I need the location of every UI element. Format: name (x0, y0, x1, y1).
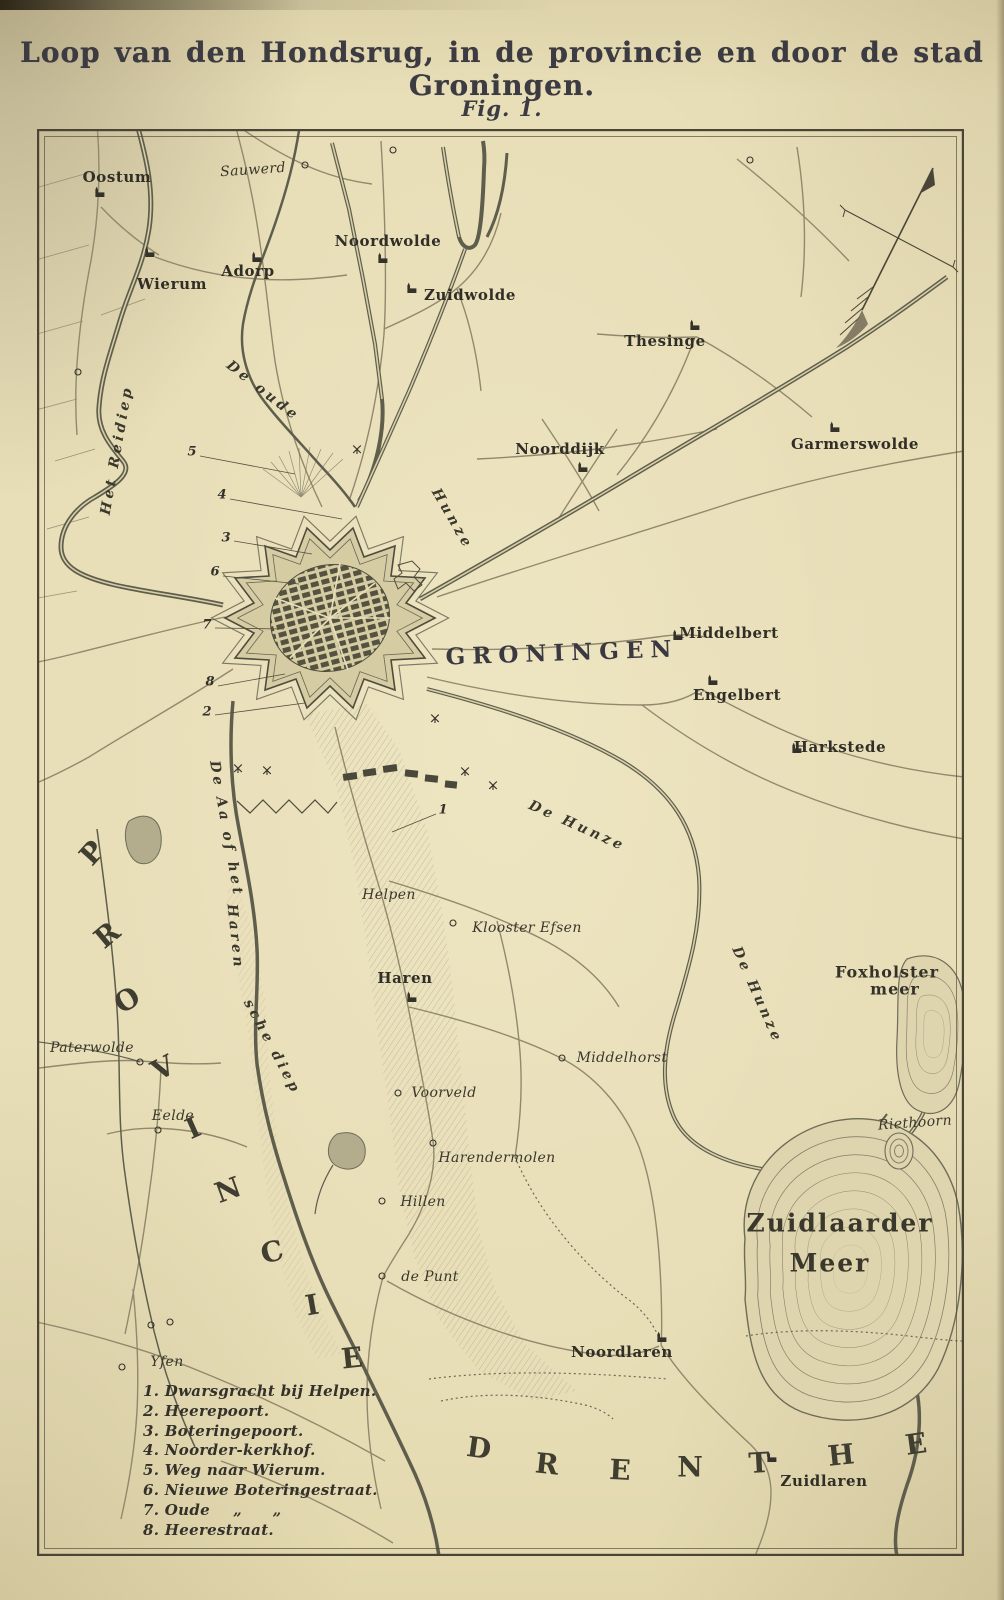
legend-item: 4. Noorder-kerkhof. (143, 1441, 378, 1461)
river-centerlines (61, 129, 947, 1173)
helper-linie-zigzag (237, 800, 337, 813)
legend-item: 8. Heerestraat. (143, 1521, 378, 1541)
windmill-icon (489, 782, 497, 791)
riethoorn-pond (885, 1133, 913, 1169)
zuidlaarder-meer (744, 1119, 962, 1421)
groningen-fortress (211, 516, 448, 719)
photo-edge-right (996, 0, 1004, 1600)
church-icon (252, 252, 261, 262)
foxholster-meer (897, 956, 964, 1113)
windmill-icon (431, 715, 439, 724)
church-icon (708, 675, 717, 685)
church-icon (767, 1452, 776, 1462)
church-icon (690, 320, 699, 330)
hondsrug-ridge-hatching (225, 704, 577, 1401)
legend-item: 2. Heerepoort. (143, 1402, 378, 1422)
legend-item: 7. Oude „ „ (143, 1501, 378, 1521)
place-circle-marker (747, 157, 753, 163)
legend-item: 3. Boteringepoort. (143, 1422, 378, 1442)
legend-item: 1. Dwarsgracht bij Helpen. (143, 1382, 378, 1402)
church-icon (95, 187, 104, 197)
windmill-icon (263, 767, 271, 776)
church-icon (830, 422, 839, 432)
place-circle-marker (379, 1198, 385, 1204)
place-circle-marker (390, 147, 396, 153)
place-circle-marker (167, 1319, 173, 1325)
north-arrow-icon (836, 168, 958, 348)
place-circle-marker (450, 920, 456, 926)
church-icon (578, 462, 587, 472)
legend: 1. Dwarsgracht bij Helpen.2. Heerepoort.… (143, 1382, 378, 1540)
place-circle-marker (119, 1364, 125, 1370)
field-lines (37, 171, 145, 599)
page: Loop van den Hondsrug, in de provincie e… (0, 0, 1004, 1600)
photo-edge-top (0, 0, 1004, 10)
legend-item: 5. Weg naar Wierum. (143, 1461, 378, 1481)
windmill-icon (461, 768, 469, 777)
legend-item: 6. Nieuwe Boteringestraat. (143, 1481, 378, 1501)
windmill-icon (353, 446, 361, 455)
windmill-icon (234, 765, 242, 774)
glacis-fan (263, 447, 343, 497)
figure-caption: Fig. 1. (0, 96, 1004, 121)
map-geometry (37, 129, 964, 1556)
church-icon (407, 283, 416, 293)
map-title: Loop van den Hondsrug, in de provincie e… (0, 36, 1004, 102)
church-icon (792, 743, 801, 753)
map-canvas: OostumSauwerdNoordwoldeZuidwoldeWierumAd… (37, 129, 964, 1556)
